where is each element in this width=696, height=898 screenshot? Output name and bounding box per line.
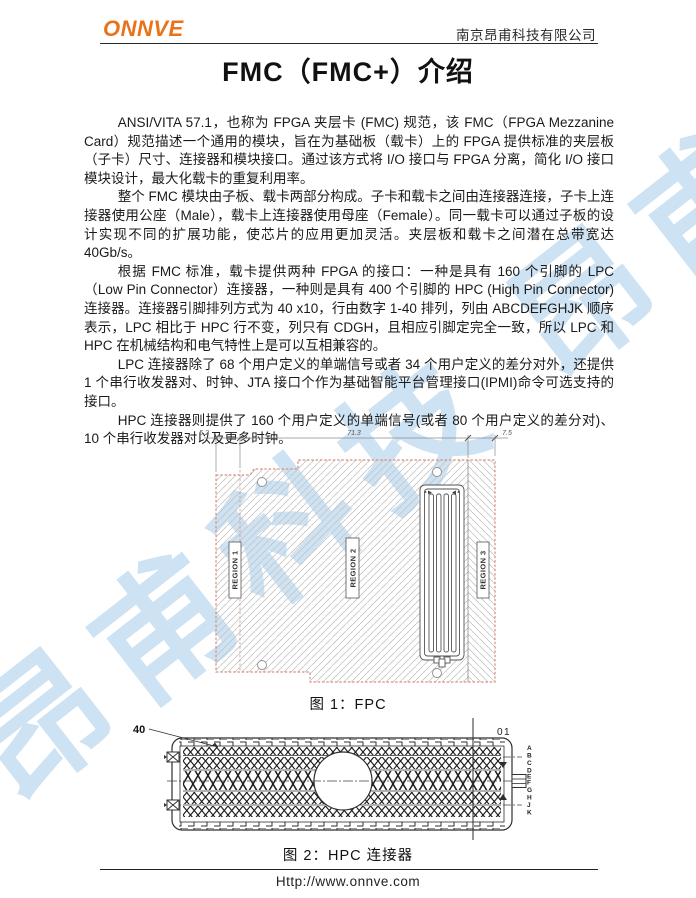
row-letter: H [527,795,532,802]
header-divider [100,43,598,44]
row-letter: F [527,780,531,787]
dim-label-left: 5.2 [199,430,209,437]
dim-label-right: 7.5 [502,430,512,437]
content-layer: ONNVE 南京昂甫科技有限公司 FMC（FMC+）介绍 ANSI/VITA 5… [0,0,696,898]
footer-website-url: Http://www.onnve.com [0,874,696,889]
dim-label-center: 71.3 [347,430,361,437]
castellation-top [179,739,505,747]
region-3-label: REGION 3 [479,550,488,589]
document-page: 昂甫科技 昂甫科技 ONNVE 南京昂甫科技有限公司 FMC（FMC+）介绍 A… [0,0,696,898]
paragraph: 根据 FMC 标准，载卡提供两种 FPGA 的接口：一种是具有 160 个引脚的… [84,263,614,356]
figure2-caption: 图 2：HPC 连接器 [0,844,696,865]
row-letter: A [527,745,532,752]
document-body: ANSI/VITA 57.1，也称为 FPGA 夹层卡 (FMC) 规范，该 F… [84,114,614,449]
row-letter-column: A B C D E F G H J K [527,745,532,817]
fpc-board-drawing: 5.2 71.3 7.5 [192,428,528,694]
company-name: 南京昂甫科技有限公司 [456,24,596,44]
figure1-caption: 图 1：FPC [0,693,696,714]
paragraph: ANSI/VITA 57.1，也称为 FPGA 夹层卡 (FMC) 规范，该 F… [84,114,614,188]
region-2-label: REGION 2 [349,548,358,587]
row-letter: K [527,810,532,817]
paragraph: LPC 连接器除了 68 个用户定义的单端信号或者 34 个用户定义的差分对外，… [84,356,614,412]
company-logo: ONNVE [103,16,184,42]
footer-divider [100,869,598,870]
row-letter: J [527,802,531,809]
row-letter: G [527,787,532,794]
right-key-tab [512,775,526,788]
hpc-connector-drawing: 40 01 [123,716,547,842]
row-letter: B [527,753,532,760]
paragraph: 整个 FMC 模块由子板、载卡两部分构成。子卡和载卡之间由连接器连接，子卡上连接… [84,188,614,262]
connector-footprint [420,485,464,667]
castellation-bottom [179,822,505,830]
row-letter: C [527,760,532,767]
pin-01-label: 01 [497,727,511,738]
pin-40-label: 40 [133,724,145,736]
region-1-label: REGION 1 [231,550,240,589]
page-title: FMC（FMC+）介绍 [0,50,696,89]
